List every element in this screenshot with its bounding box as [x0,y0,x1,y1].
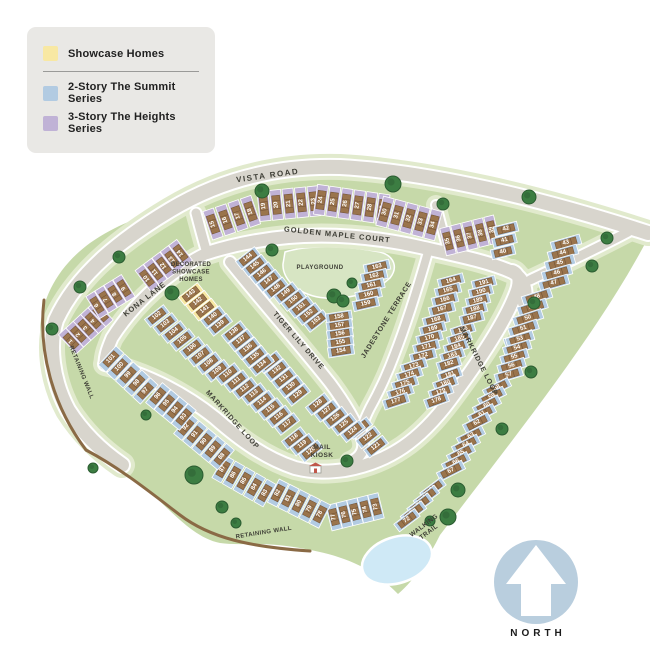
tree-icon [165,286,179,300]
tree-icon [141,410,151,420]
tree-icon [437,198,449,210]
legend-item-summit: 2-Story The Summit Series [43,81,199,105]
svg-text:19: 19 [261,202,268,210]
legend-label: 3-Story The Heights Series [68,111,199,135]
tree-icon [496,423,508,435]
tree-icon [525,366,537,378]
tree-icon [216,501,228,513]
tree-icon [266,244,278,256]
legend: Showcase Homes 2-Story The Summit Series… [27,27,215,153]
tree-icon [74,281,86,293]
legend-divider [43,71,199,72]
legend-item-heights: 3-Story The Heights Series [43,111,199,135]
tree-icon [528,297,540,309]
tree-icon [113,251,125,263]
label-mail-kiosk: MAILKIOSK [311,444,334,459]
tree-icon [347,278,357,288]
legend-label: 2-Story The Summit Series [68,81,199,105]
tree-icon [522,190,536,204]
tree-icon [601,232,613,244]
heights-swatch-icon [43,116,58,131]
tree-icon [231,518,241,528]
tree-icon [440,509,456,525]
site-map-page: 1516171819202122232425262728293031323334… [0,0,650,660]
showcase-swatch-icon [43,46,58,61]
tree-icon [586,260,598,272]
svg-text:21: 21 [286,199,293,207]
svg-text:22: 22 [298,198,305,206]
tree-icon [451,483,465,497]
north-indicator: NORTH [484,538,588,650]
tree-icon [88,463,98,473]
tree-icon [46,323,58,335]
north-arrow-icon [492,538,580,626]
tree-icon [185,466,203,484]
legend-label: Showcase Homes [68,48,164,60]
north-label: NORTH [484,628,588,639]
tree-icon [255,184,269,198]
tree-icon [337,295,349,307]
tree-icon [341,455,353,467]
summit-swatch-icon [43,86,58,101]
tree-icon [385,176,401,192]
svg-text:20: 20 [273,201,280,209]
label-playground: PLAYGROUND [296,265,343,271]
legend-item-showcase: Showcase Homes [43,46,199,61]
